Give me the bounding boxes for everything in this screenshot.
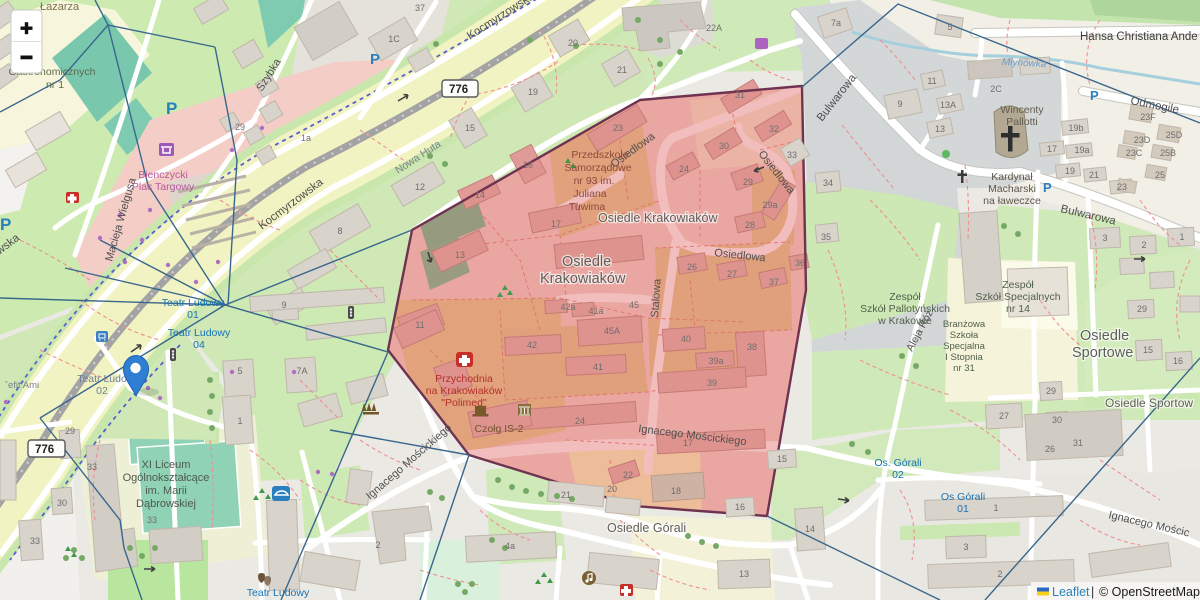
svg-text:Bienczycki: Bienczycki [138, 169, 188, 181]
svg-text:21: 21 [1089, 170, 1099, 180]
svg-text:37: 37 [415, 3, 425, 13]
svg-text:11: 11 [415, 320, 424, 330]
svg-text:2: 2 [997, 569, 1002, 579]
svg-text:Plac Targowy: Plac Targowy [132, 181, 195, 193]
svg-text:P: P [0, 215, 11, 234]
svg-text:"Polimed": "Polimed" [441, 397, 487, 409]
svg-text:ˇefit Ami: ˇefit Ami [5, 380, 39, 391]
svg-text:33: 33 [30, 536, 40, 546]
svg-text:27: 27 [999, 411, 1009, 421]
svg-text:© OpenStreetMap: © OpenStreetMap [1099, 585, 1200, 599]
svg-text:42a: 42a [560, 302, 575, 312]
svg-text:31: 31 [1073, 438, 1083, 448]
svg-text:2C: 2C [990, 84, 1002, 94]
svg-text:Ogólnokształcące: Ogólnokształcące [123, 472, 210, 484]
svg-text:na ławeczce: na ławeczce [983, 195, 1041, 207]
svg-text:Teatr Ludowy: Teatr Ludowy [162, 297, 225, 309]
svg-text:16: 16 [1173, 356, 1183, 366]
svg-text:Hansa Christiana Ande: Hansa Christiana Ande [1080, 31, 1198, 43]
svg-text:25B: 25B [1160, 148, 1176, 158]
svg-text:40: 40 [681, 334, 691, 344]
svg-text:35: 35 [821, 232, 831, 242]
svg-text:9: 9 [897, 99, 902, 109]
svg-text:16: 16 [523, 160, 533, 170]
svg-text:9: 9 [281, 300, 286, 310]
svg-text:19: 19 [528, 87, 538, 97]
svg-text:5: 5 [237, 366, 242, 376]
svg-text:28: 28 [745, 220, 755, 230]
svg-text:15: 15 [777, 454, 787, 464]
svg-text:23D: 23D [1134, 135, 1151, 145]
svg-text:Sportowe: Sportowe [1072, 345, 1133, 361]
svg-text:17: 17 [1047, 144, 1057, 154]
svg-text:2: 2 [1141, 240, 1146, 250]
svg-text:21: 21 [617, 65, 627, 75]
svg-text:Dąbrowskiej: Dąbrowskiej [136, 498, 196, 510]
svg-text:01: 01 [187, 309, 199, 321]
svg-text:16: 16 [735, 502, 745, 512]
svg-text:Przedszkole: Przedszkole [571, 149, 628, 161]
svg-text:29a: 29a [762, 200, 777, 210]
svg-text:Przychodnia: Przychodnia [435, 373, 493, 385]
svg-text:19: 19 [1065, 166, 1075, 176]
svg-text:Leaflet: Leaflet [1052, 585, 1090, 599]
svg-text:37: 37 [769, 277, 779, 287]
svg-text:Młynówka: Młynówka [1002, 57, 1047, 70]
svg-text:4a: 4a [505, 541, 515, 551]
svg-text:Samorządowe: Samorządowe [564, 162, 631, 174]
svg-text:Teatr Ludowy: Teatr Ludowy [168, 327, 231, 339]
svg-text:P: P [166, 99, 177, 118]
svg-text:nr 1: nr 1 [46, 79, 64, 91]
svg-text:Specjalna: Specjalna [943, 341, 985, 352]
svg-text:1: 1 [1179, 232, 1184, 242]
svg-text:14: 14 [805, 524, 815, 534]
svg-text:33: 33 [147, 515, 157, 525]
svg-text:39: 39 [707, 378, 717, 388]
svg-text:Osiedle Górali: Osiedle Górali [607, 521, 686, 535]
svg-text:11: 11 [927, 76, 936, 86]
svg-text:18: 18 [671, 486, 681, 496]
svg-text:29: 29 [235, 122, 245, 132]
svg-text:21: 21 [561, 490, 571, 500]
svg-text:Zespół: Zespół [889, 291, 921, 303]
svg-text:13: 13 [739, 569, 749, 579]
svg-text:02: 02 [892, 469, 904, 481]
svg-text:41a: 41a [588, 306, 603, 316]
svg-text:7A: 7A [296, 366, 307, 376]
svg-text:Teatr Ludowy: Teatr Ludowy [247, 587, 310, 599]
svg-text:01: 01 [957, 503, 969, 515]
svg-text:15: 15 [1143, 345, 1153, 355]
svg-text:8: 8 [337, 226, 342, 236]
svg-text:Juliana: Juliana [573, 188, 606, 200]
svg-text:24: 24 [679, 164, 689, 174]
svg-text:13: 13 [935, 124, 945, 134]
svg-text:12: 12 [415, 182, 425, 192]
svg-text:13A: 13A [940, 100, 956, 110]
svg-text:33: 33 [787, 150, 797, 160]
svg-text:Krakowiaków: Krakowiaków [540, 271, 626, 287]
svg-text:23C: 23C [1126, 148, 1143, 158]
svg-text:29: 29 [1137, 304, 1147, 314]
svg-text:Os. Górali: Os. Górali [874, 457, 921, 469]
svg-text:Pallotti: Pallotti [1006, 116, 1038, 128]
svg-text:02: 02 [96, 385, 108, 397]
svg-text:P: P [370, 51, 380, 68]
svg-text:17: 17 [551, 219, 561, 229]
svg-text:P: P [1090, 88, 1099, 103]
svg-text:Kardynał: Kardynał [991, 171, 1033, 183]
svg-text:w Krakowie: w Krakowie [877, 315, 932, 327]
svg-text:5: 5 [947, 22, 952, 32]
svg-text:45: 45 [629, 300, 639, 310]
svg-text:22A: 22A [706, 23, 722, 33]
svg-text:27: 27 [727, 269, 737, 279]
svg-text:04: 04 [193, 339, 205, 351]
svg-text:13: 13 [455, 250, 465, 260]
svg-text:32: 32 [769, 124, 779, 134]
svg-text:31: 31 [735, 90, 745, 100]
svg-text:Wincenty: Wincenty [1000, 104, 1044, 116]
svg-text:Osiedle: Osiedle [562, 254, 611, 270]
svg-text:Tuwima: Tuwima [569, 201, 606, 213]
svg-text:42: 42 [527, 340, 537, 350]
svg-text:29: 29 [743, 177, 753, 187]
svg-text:20: 20 [607, 484, 617, 494]
svg-text:1a: 1a [301, 133, 311, 143]
svg-text:25: 25 [1155, 170, 1165, 180]
svg-text:nr 93 im.: nr 93 im. [574, 175, 615, 187]
svg-text:38: 38 [747, 342, 757, 352]
svg-text:19b: 19b [1068, 123, 1083, 133]
svg-text:29: 29 [1046, 386, 1056, 396]
svg-text:Os Górali: Os Górali [941, 491, 985, 503]
svg-text:Branżowa: Branżowa [943, 319, 986, 330]
svg-text:nr 14: nr 14 [1006, 303, 1030, 315]
svg-text:776: 776 [35, 444, 54, 456]
svg-text:17: 17 [683, 438, 693, 448]
svg-text:Osiedle Sportow: Osiedle Sportow [1105, 396, 1193, 410]
svg-text:41: 41 [593, 362, 603, 372]
svg-text:1: 1 [993, 503, 998, 513]
svg-text:3: 3 [1102, 233, 1107, 243]
svg-text:Zespół: Zespół [1002, 279, 1034, 291]
svg-text:14: 14 [475, 190, 485, 200]
svg-text:33: 33 [87, 462, 97, 472]
svg-text:29: 29 [65, 426, 75, 436]
svg-text:Teatr Ludo: Teatr Ludo [77, 373, 127, 385]
svg-text:30: 30 [57, 498, 67, 508]
svg-text:25D: 25D [1166, 130, 1183, 140]
svg-text:Czołg IS-2: Czołg IS-2 [474, 423, 523, 435]
svg-text:2: 2 [375, 540, 380, 550]
svg-text:23: 23 [1117, 182, 1127, 192]
svg-text:Szkół Specjalnych: Szkół Specjalnych [975, 291, 1060, 303]
svg-text:3: 3 [963, 542, 968, 552]
svg-text:22: 22 [623, 470, 633, 480]
svg-text:Szkoła: Szkoła [950, 330, 979, 341]
svg-text:Macharski: Macharski [988, 183, 1036, 195]
svg-text:1C: 1C [388, 34, 400, 44]
svg-text:23: 23 [613, 123, 623, 133]
svg-text:|: | [1091, 585, 1094, 599]
svg-text:26: 26 [1045, 444, 1055, 454]
svg-text:776: 776 [449, 84, 468, 96]
svg-text:I Stopnia: I Stopnia [945, 352, 983, 363]
svg-text:20: 20 [568, 38, 578, 48]
svg-text:1: 1 [237, 416, 242, 426]
svg-text:39a: 39a [708, 356, 723, 366]
svg-text:23F: 23F [1140, 112, 1156, 122]
svg-text:7a: 7a [831, 18, 841, 28]
svg-text:im. Marii: im. Marii [145, 485, 187, 497]
svg-text:Łazarza: Łazarza [40, 1, 80, 13]
svg-text:15: 15 [465, 123, 475, 133]
svg-text:19a: 19a [1074, 145, 1089, 155]
svg-text:Osiedle Krakowiaków: Osiedle Krakowiaków [598, 211, 718, 225]
svg-text:na Krakowiaków: na Krakowiaków [426, 385, 503, 397]
svg-text:Osiedle: Osiedle [1080, 328, 1129, 344]
svg-text:nr 31: nr 31 [953, 363, 975, 374]
svg-text:XI Liceum: XI Liceum [142, 459, 191, 471]
svg-text:34: 34 [823, 178, 833, 188]
svg-text:24: 24 [575, 416, 585, 426]
svg-text:30: 30 [1052, 415, 1062, 425]
svg-text:26: 26 [687, 262, 697, 272]
svg-text:36: 36 [795, 258, 805, 268]
svg-text:P: P [1043, 180, 1052, 195]
svg-text:30: 30 [719, 141, 729, 151]
svg-text:45A: 45A [604, 326, 620, 336]
svg-text:Szkół Pallotyńskich: Szkół Pallotyńskich [860, 303, 950, 315]
